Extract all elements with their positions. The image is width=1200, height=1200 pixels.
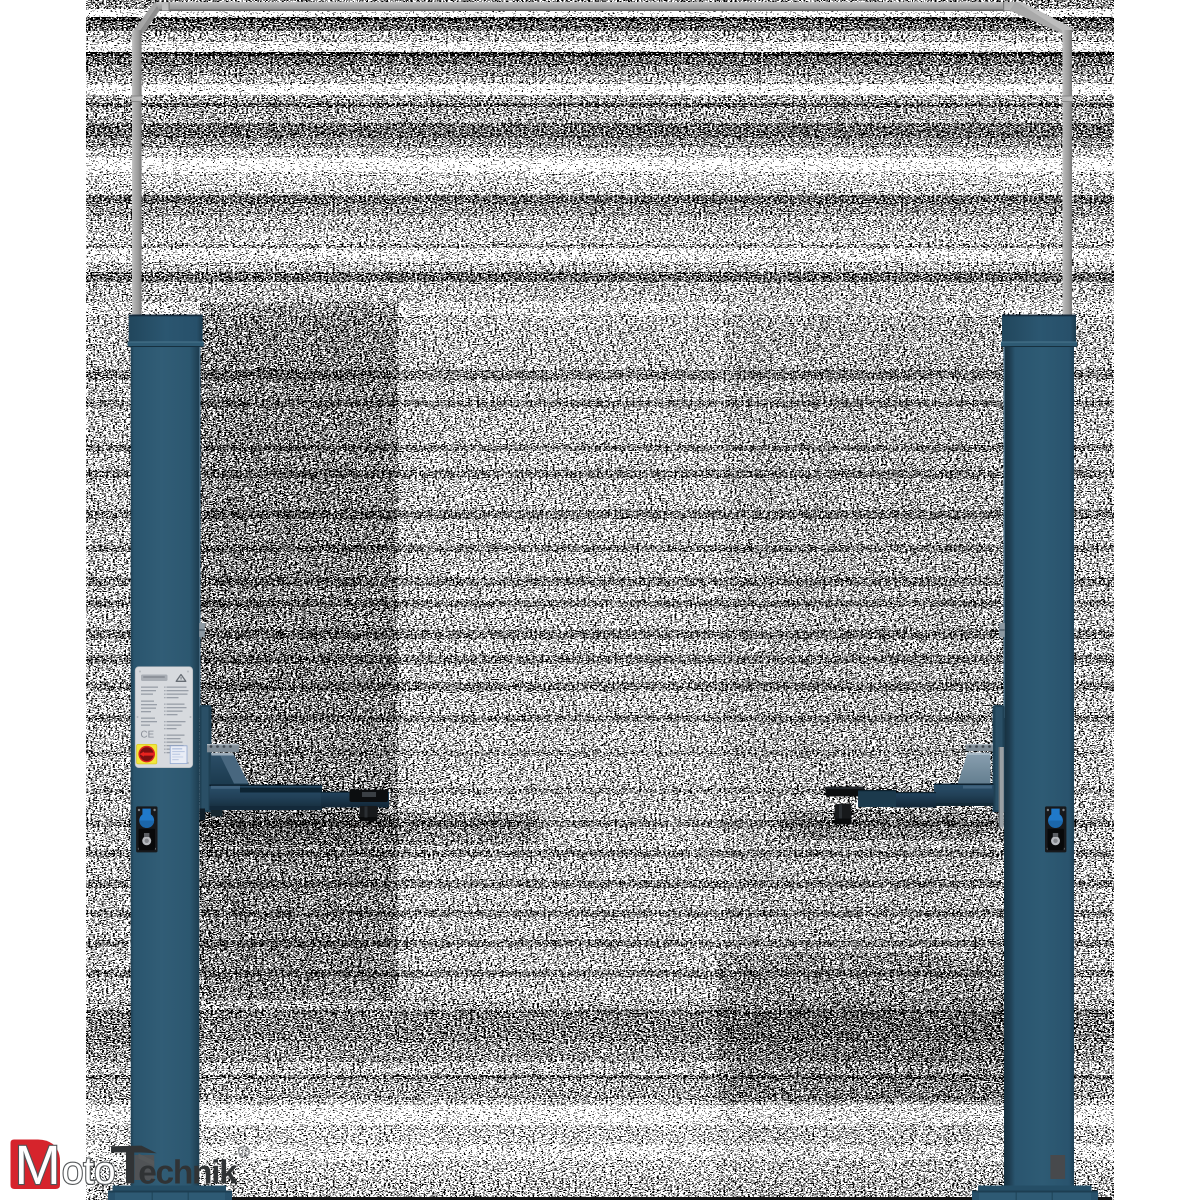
svg-text:CE: CE [141,730,155,741]
svg-text:R: R [241,1147,248,1157]
svg-text:M: M [15,1134,61,1196]
svg-text:oto: oto [62,1150,116,1193]
svg-text:echnik: echnik [138,1154,238,1191]
